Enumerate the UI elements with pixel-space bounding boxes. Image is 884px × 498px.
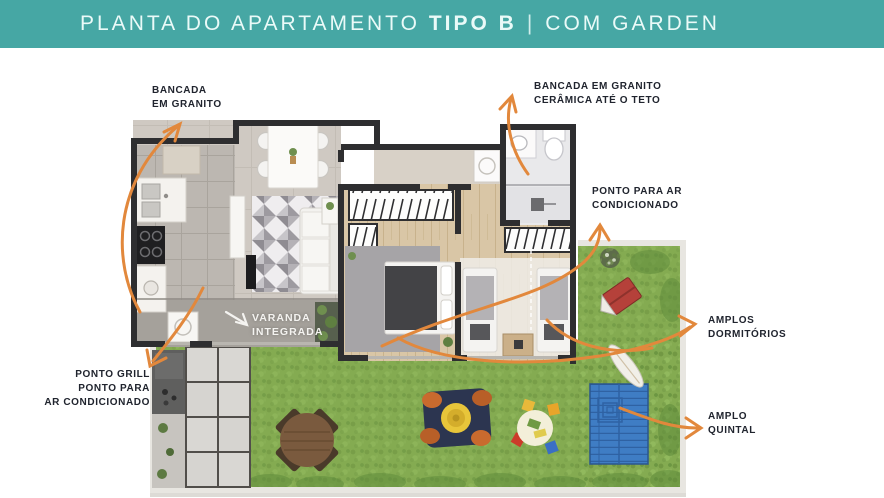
label-bancada-ceramica: BANCADA EM GRANITO CERÂMICA ATÉ O TETO: [534, 80, 661, 108]
title-suffix: COM GARDEN: [545, 12, 720, 35]
washer: [474, 150, 500, 182]
closet-rack-2: [505, 228, 572, 252]
title-separator: |: [517, 12, 545, 35]
page: PLANTA DO APARTAMENTO TIPO B|COM GARDEN …: [0, 0, 884, 498]
label-ponto-ar: PONTO PARA AR CONDICIONADO: [592, 185, 682, 213]
master-bedroom: [345, 190, 455, 352]
label-amplos-dormitorios: AMPLOS DORMITÓRIOS: [708, 314, 786, 342]
page-title: PLANTA DO APARTAMENTO TIPO B|COM GARDEN: [80, 12, 720, 36]
lounge-mat: [420, 388, 492, 448]
tv: [246, 255, 256, 289]
label-varanda-integrada: VARANDA INTEGRADA: [252, 311, 323, 339]
label-ponto-grill: PONTO GRILL PONTO PARA AR CONDICIONADO: [30, 368, 150, 410]
label-amplo-quintal: AMPLO QUINTAL: [708, 410, 756, 438]
closet-rack: [349, 190, 453, 220]
double-bed: [385, 262, 455, 334]
title-prefix: PLANTA DO APARTAMENTO: [80, 12, 420, 35]
dining-set: [258, 124, 329, 188]
blue-deck: [590, 384, 648, 464]
plan-shadow: [150, 493, 686, 497]
title-type: TIPO B: [429, 12, 517, 35]
dandelion-plant: [600, 248, 620, 268]
header-bar: PLANTA DO APARTAMENTO TIPO B|COM GARDEN: [0, 0, 884, 48]
patio: [152, 346, 251, 488]
pavers: [185, 346, 251, 488]
label-bancada-granito: BANCADA EM GRANITO: [152, 84, 222, 112]
